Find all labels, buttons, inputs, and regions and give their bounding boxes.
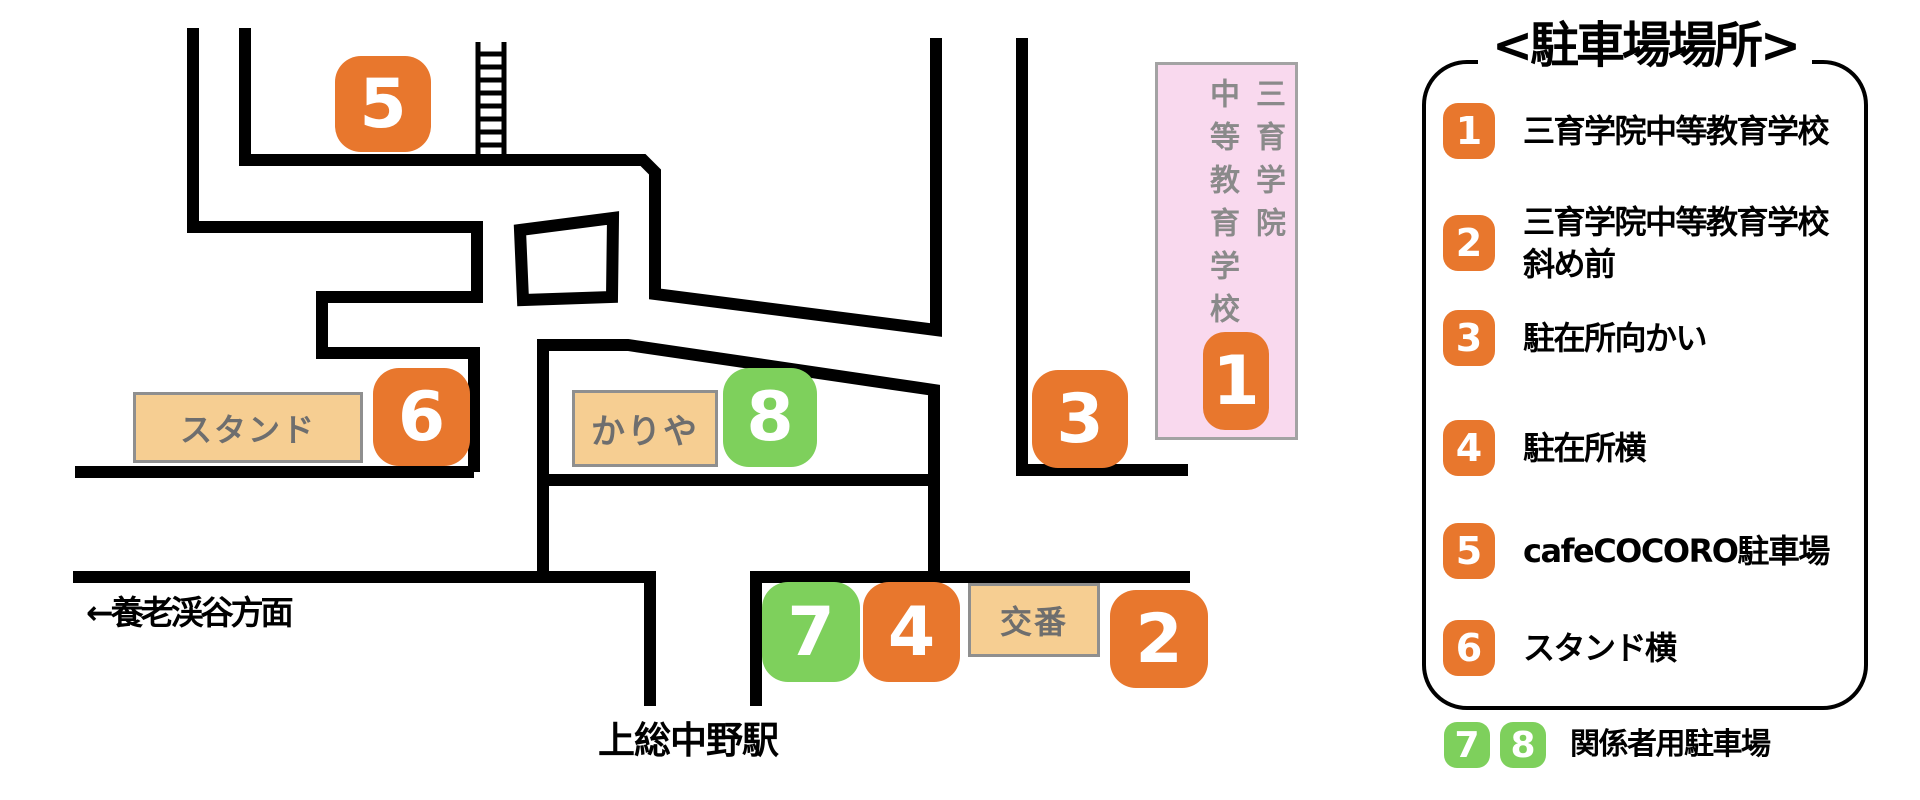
marker-1-number: 1 [1212,342,1259,421]
legend-label-1: 三育学院中等教育学校 [1523,110,1828,152]
map-marker-5[interactable]: 5 [335,56,431,152]
legend-item-6: 6 スタンド横 [1443,620,1676,676]
marker-2-number: 2 [1135,600,1182,679]
yoro-valley-direction-label: ←養老渓谷方面 [86,586,291,634]
legend-item-4: 4 駐在所横 [1443,420,1645,476]
marker-5-number: 5 [359,65,406,144]
legend-badge-2: 2 [1443,215,1495,271]
legend-label-6: スタンド横 [1523,627,1676,669]
marker-3-number: 3 [1056,380,1103,459]
legend-label-5: cafeCOCORO駐車場 [1523,530,1829,572]
legend-note-badge-8: 8 [1500,722,1546,768]
koban-building: 交番 [968,583,1100,657]
kazusa-nakano-station-label: 上総中野駅 [598,710,778,764]
marker-6-number: 6 [398,378,445,457]
koban-label: 交番 [1000,597,1068,643]
block-parallelogram [520,218,613,300]
legend-item-1: 1 三育学院中等教育学校 [1443,103,1828,159]
gas-stand-building: スタンド [133,392,363,463]
map-marker-7[interactable]: 7 [762,582,860,682]
marker-8-number: 8 [746,378,793,457]
legend-note-badge-7: 7 [1444,722,1490,768]
kariya-label: かりや [591,404,699,453]
map-marker-4[interactable]: 4 [863,582,960,682]
marker-4-number: 4 [888,593,935,672]
legend-title: <駐車場場所> [1478,18,1812,76]
legend-badge-4: 4 [1443,420,1495,476]
legend-note-label: 関係者用駐車場 [1570,724,1770,766]
parking-map-page: 三育学院 中等教育学校 スタンド かりや 交番 1 2 3 4 5 6 7 8 … [0,0,1920,800]
legend-label-2: 三育学院中等教育学校 [1523,201,1828,243]
legend-item-2: 2 三育学院中等教育学校斜め前 [1443,198,1828,288]
kariya-building: かりや [572,390,718,467]
map-marker-3[interactable]: 3 [1032,370,1128,468]
marker-7-number: 7 [787,593,834,672]
legend-badge-3: 3 [1443,310,1495,366]
gas-stand-label: スタンド [180,405,316,451]
legend-badge-1: 1 [1443,103,1495,159]
legend-note-staff-parking: 7 8 関係者用駐車場 [1444,722,1770,768]
legend-label-4: 駐在所横 [1523,427,1645,469]
map-marker-6[interactable]: 6 [373,368,470,466]
railroad-crossing-icon [478,42,504,161]
legend-badge-5: 5 [1443,523,1495,579]
legend-label-3: 駐在所向かい [1523,317,1706,359]
legend-badge-6: 6 [1443,620,1495,676]
map-marker-1[interactable]: 1 [1203,332,1269,430]
legend-label-2-line2: 斜め前 [1523,243,1828,285]
map-marker-8[interactable]: 8 [723,368,817,467]
legend-item-5: 5 cafeCOCORO駐車場 [1443,523,1829,579]
legend-item-3: 3 駐在所向かい [1443,310,1706,366]
map-marker-2[interactable]: 2 [1110,590,1208,688]
